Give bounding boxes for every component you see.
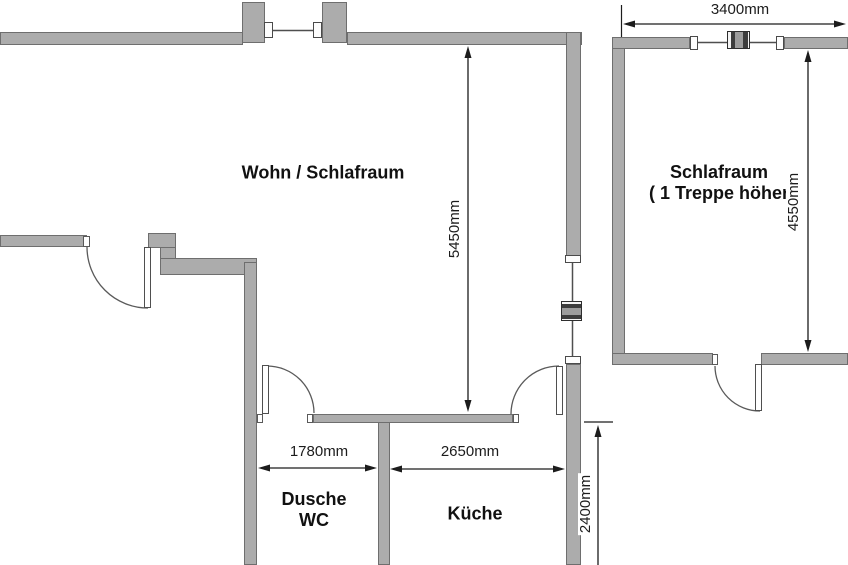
dim-label-2650: 2650mm <box>439 444 501 460</box>
dim-arrow-3400-right <box>834 21 846 28</box>
plan-linework <box>0 0 848 565</box>
wall-schlafraum-left <box>612 37 625 365</box>
wall-top-left <box>0 32 243 45</box>
bay-window-frame-left <box>264 22 273 38</box>
wall-bay-pillar-left <box>242 2 265 43</box>
kueche-door-arc <box>511 366 559 414</box>
dusche-door-jamb-left <box>257 414 263 423</box>
floorplan-canvas: Wohn / Schlafraum Schlafraum ( 1 Treppe … <box>0 0 848 565</box>
schlafraum-window-frame-right <box>776 36 784 50</box>
dusche-door-jamb-right <box>307 414 313 423</box>
wall-bay-pillar-right <box>322 2 347 43</box>
room-label-schlafraum-line2: ( 1 Treppe höher <box>649 183 789 204</box>
dusche-door-leaf <box>262 365 269 414</box>
wall-dusche-kueche-divider <box>378 422 390 565</box>
room-label-schlafraum: Schlafraum ( 1 Treppe höher <box>649 162 789 204</box>
dim-arrow-1780-left <box>258 465 270 472</box>
entry-door-jamb <box>83 236 90 247</box>
dim-arrow-5450-top <box>465 46 472 58</box>
kueche-door-leaf <box>556 366 563 415</box>
wall-schlafraum-top-right <box>784 37 848 49</box>
dim-label-1780: 1780mm <box>288 444 350 460</box>
wall-right-upper <box>566 32 581 256</box>
dim-arrow-3400-left <box>623 21 635 28</box>
wall-schlafraum-top-left <box>612 37 690 49</box>
dim-arrow-2650-left <box>390 466 402 473</box>
dim-label-5450: 5450mm <box>447 198 463 260</box>
side-window-frame-top <box>565 255 581 263</box>
room-label-dusche: Dusche <box>281 489 346 510</box>
entry-door-leaf <box>144 247 151 308</box>
side-window-frame-bottom <box>565 356 581 364</box>
wall-dusche-left <box>244 262 257 565</box>
wall-entry-jamb-block <box>148 233 176 248</box>
schlafraum-door-arc <box>715 366 760 411</box>
room-label-dusche-wc: Dusche WC <box>281 489 346 531</box>
bay-window-frame-right <box>313 22 322 38</box>
wall-entry-left <box>0 235 87 247</box>
wall-top-right <box>347 32 582 45</box>
room-label-schlafraum-line1: Schlafraum <box>649 162 789 183</box>
schlafraum-door-leaf <box>755 364 762 411</box>
wall-step-horizontal <box>160 258 257 275</box>
dim-arrow-4550-top <box>805 50 812 62</box>
side-window-mullion-block <box>561 301 582 321</box>
dim-label-2400: 2400mm <box>578 473 594 535</box>
room-label-kueche: Küche <box>447 504 502 525</box>
wall-schlafraum-bottom-left <box>612 353 713 365</box>
dim-label-3400: 3400mm <box>709 2 771 18</box>
dim-arrow-1780-right <box>365 465 377 472</box>
entry-door-arc <box>87 247 148 308</box>
room-label-wohn-schlafraum: Wohn / Schlafraum <box>242 163 405 184</box>
dim-arrow-2400-top <box>595 425 602 437</box>
schlafraum-window-mullion-block <box>727 31 750 49</box>
dim-arrow-5450-bottom <box>465 400 472 412</box>
dim-label-4550: 4550mm <box>786 171 802 233</box>
dusche-door-arc <box>267 366 314 413</box>
dim-arrow-2650-right <box>553 466 565 473</box>
wall-schlafraum-bottom-right <box>761 353 848 365</box>
schlafraum-door-jamb <box>712 354 718 365</box>
dim-arrow-4550-bottom <box>805 340 812 352</box>
room-label-wc: WC <box>281 510 346 531</box>
wall-kueche-top <box>313 414 513 423</box>
kueche-door-jamb-left <box>513 414 519 423</box>
schlafraum-window-frame-left <box>690 36 698 50</box>
